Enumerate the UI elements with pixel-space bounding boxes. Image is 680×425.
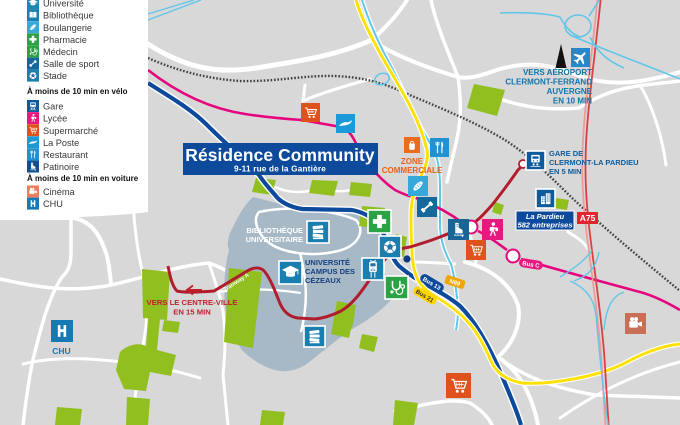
svg-text:UNIVERSITÉ: UNIVERSITÉ xyxy=(305,258,350,267)
svg-text:VERS AÉROPORT: VERS AÉROPORT xyxy=(523,68,592,77)
svg-text:EN 10 MIN: EN 10 MIN xyxy=(553,97,592,106)
svg-text:EN 15 MIN: EN 15 MIN xyxy=(173,308,211,317)
svg-text:Médecin: Médecin xyxy=(43,47,78,57)
svg-text:Université: Université xyxy=(43,0,84,9)
svg-text:La Poste: La Poste xyxy=(43,138,79,148)
svg-text:CHU: CHU xyxy=(52,346,70,356)
svg-text:AUVERGNE: AUVERGNE xyxy=(547,87,593,96)
svg-text:CAMPUS DES: CAMPUS DES xyxy=(305,267,355,276)
svg-text:Salle de sport: Salle de sport xyxy=(43,59,100,69)
svg-text:CLERMONT-FERRAND: CLERMONT-FERRAND xyxy=(505,78,592,87)
svg-text:Lycée: Lycée xyxy=(43,114,67,124)
svg-text:CHU: CHU xyxy=(43,199,63,209)
svg-text:Cinéma: Cinéma xyxy=(43,187,76,197)
svg-text:582 entreprises: 582 entreprises xyxy=(517,221,572,230)
svg-text:9-11 rue de la Gantière: 9-11 rue de la Gantière xyxy=(234,165,326,174)
svg-text:Gare: Gare xyxy=(43,102,63,112)
svg-text:CLERMONT-LA PARDIEU: CLERMONT-LA PARDIEU xyxy=(549,158,639,167)
svg-text:Boulangerie: Boulangerie xyxy=(43,23,92,33)
svg-text:Pharmacie: Pharmacie xyxy=(43,35,87,45)
svg-text:À moins de 10 min en vélo: À moins de 10 min en vélo xyxy=(27,87,128,96)
svg-text:CÉZEAUX: CÉZEAUX xyxy=(305,276,341,285)
svg-text:ZONE: ZONE xyxy=(401,157,424,166)
svg-text:GARE DE: GARE DE xyxy=(549,149,583,158)
svg-text:Restaurant: Restaurant xyxy=(43,150,88,160)
svg-text:Bibliothèque: Bibliothèque xyxy=(43,11,94,21)
svg-text:UNIVERSITAIRE: UNIVERSITAIRE xyxy=(246,235,303,244)
svg-text:BIBLIOTHÈQUE: BIBLIOTHÈQUE xyxy=(246,226,303,235)
svg-text:Patinoire: Patinoire xyxy=(43,162,79,172)
svg-text:VERS LE CENTRE-VILLE: VERS LE CENTRE-VILLE xyxy=(147,298,238,307)
svg-text:EN 5 MIN: EN 5 MIN xyxy=(549,167,582,176)
svg-text:Supermarché: Supermarché xyxy=(43,126,98,136)
svg-text:Résidence Community: Résidence Community xyxy=(185,145,375,165)
svg-text:À moins de 10 min en voiture: À moins de 10 min en voiture xyxy=(27,174,139,183)
svg-text:COMMERCIALE: COMMERCIALE xyxy=(382,166,443,175)
svg-text:A75: A75 xyxy=(580,213,596,223)
svg-text:Stade: Stade xyxy=(43,71,67,81)
